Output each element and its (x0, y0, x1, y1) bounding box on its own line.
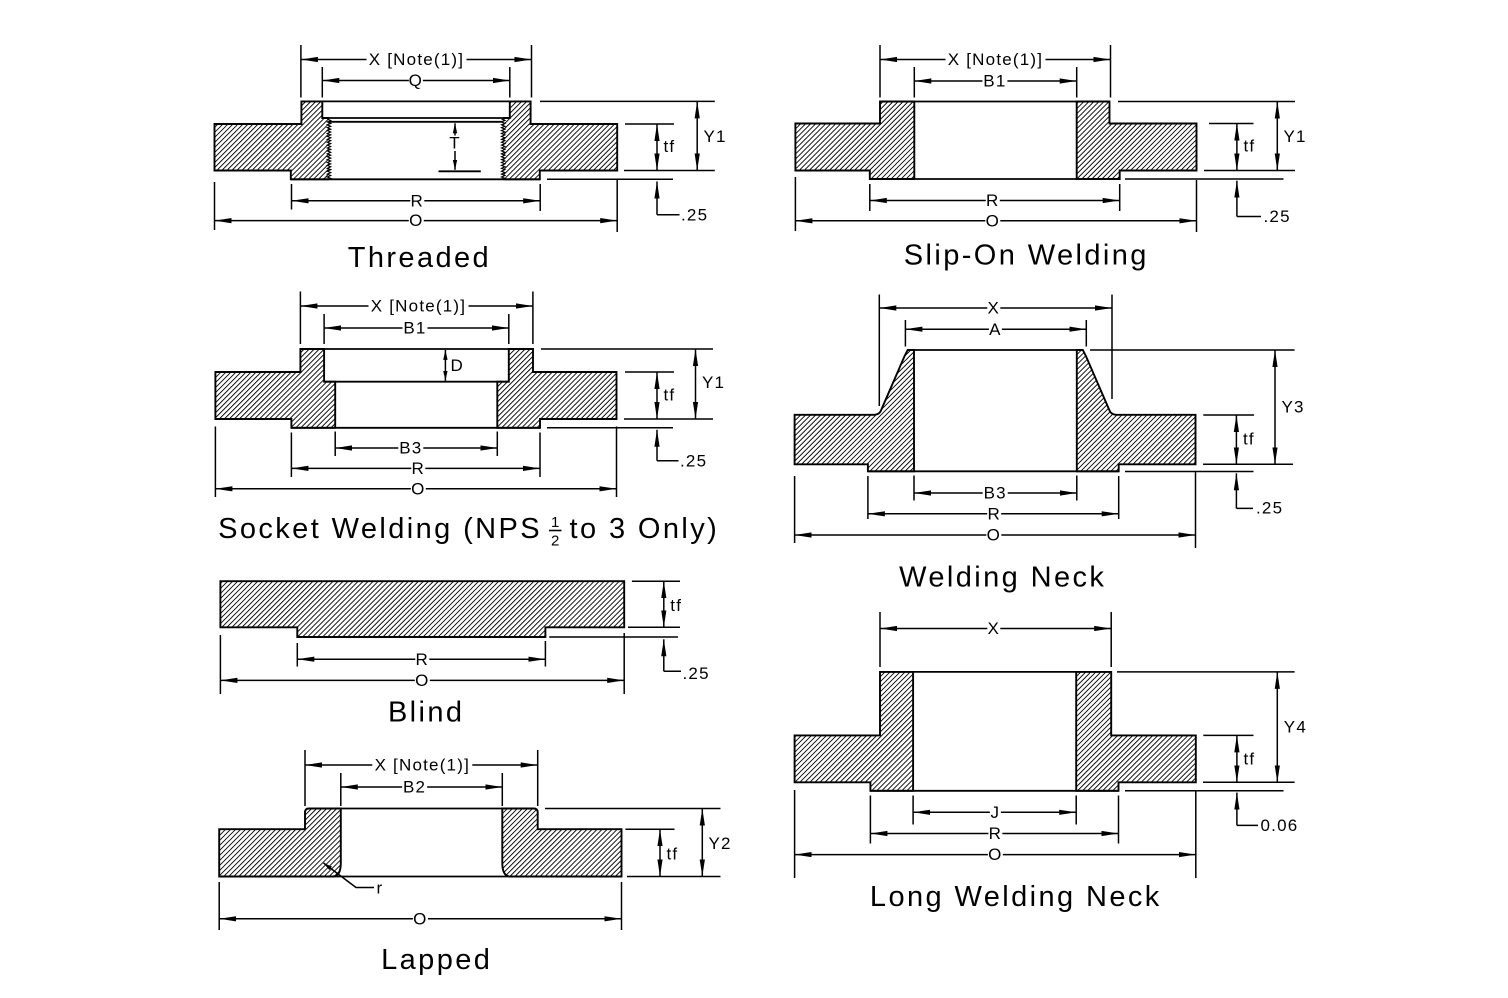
svg-text:R: R (989, 824, 1002, 843)
svg-text:Y4: Y4 (1284, 718, 1307, 737)
svg-text:R: R (416, 650, 429, 669)
svg-text:R: R (986, 191, 999, 210)
svg-text:Socket Welding (NPS: Socket Welding (NPS (218, 513, 542, 545)
svg-text:tf: tf (670, 596, 682, 615)
svg-text:.25: .25 (1264, 207, 1291, 226)
svg-text:Q: Q (409, 71, 423, 90)
svg-text:Y3: Y3 (1282, 398, 1305, 417)
svg-text:X: X (988, 619, 1001, 638)
svg-text:Y1: Y1 (1284, 127, 1307, 146)
svg-text:O: O (415, 671, 429, 690)
svg-text:O: O (986, 211, 1000, 230)
svg-text:Lapped: Lapped (381, 944, 492, 976)
svg-text:Welding Neck: Welding Neck (899, 562, 1106, 594)
svg-text:X [Note(1)]: X [Note(1)] (371, 297, 466, 316)
svg-text:B3: B3 (399, 439, 422, 458)
svg-text:J: J (991, 803, 1001, 822)
svg-text:R: R (412, 459, 425, 478)
svg-text:X [Note(1)]: X [Note(1)] (369, 50, 464, 69)
svg-text:r: r (377, 879, 384, 898)
svg-text:B1: B1 (983, 72, 1006, 91)
svg-text:to 3 Only): to 3 Only) (570, 513, 720, 545)
svg-text:X: X (988, 299, 1001, 318)
svg-text:tf: tf (1244, 137, 1256, 156)
svg-text:O: O (988, 845, 1002, 864)
svg-text:.25: .25 (1256, 499, 1283, 518)
svg-text:T: T (449, 134, 461, 153)
svg-text:X [Note(1)]: X [Note(1)] (375, 756, 470, 775)
svg-text:tf: tf (667, 845, 679, 864)
svg-text:Blind: Blind (388, 697, 465, 729)
svg-text:tf: tf (1244, 750, 1256, 769)
svg-text:X [Note(1)]: X [Note(1)] (948, 50, 1043, 69)
svg-text:R: R (411, 191, 424, 210)
svg-text:A: A (989, 320, 1002, 339)
svg-text:2: 2 (551, 533, 559, 550)
svg-text:.25: .25 (681, 206, 708, 225)
svg-text:Threaded: Threaded (348, 242, 491, 274)
svg-text:O: O (987, 526, 1001, 545)
svg-text:B1: B1 (403, 319, 426, 338)
svg-text:tf: tf (1243, 430, 1255, 449)
svg-text:D: D (451, 356, 464, 375)
svg-text:Long Welding Neck: Long Welding Neck (870, 881, 1162, 913)
svg-text:O: O (413, 909, 427, 928)
svg-text:R: R (987, 504, 1000, 523)
svg-text:tf: tf (664, 386, 676, 405)
svg-text:Slip-On Welding: Slip-On Welding (904, 240, 1149, 272)
svg-text:.25: .25 (680, 451, 707, 470)
svg-text:O: O (409, 211, 423, 230)
svg-text:B2: B2 (403, 778, 426, 797)
svg-text:Y1: Y1 (702, 373, 725, 392)
svg-text:Y2: Y2 (709, 834, 732, 853)
svg-text:tf: tf (664, 137, 676, 156)
svg-text:1: 1 (551, 514, 559, 531)
svg-text:O: O (411, 479, 425, 498)
svg-text:B3: B3 (984, 484, 1007, 503)
svg-text:.25: .25 (683, 664, 710, 683)
svg-text:Y1: Y1 (704, 127, 727, 146)
svg-text:0.06: 0.06 (1261, 816, 1299, 835)
